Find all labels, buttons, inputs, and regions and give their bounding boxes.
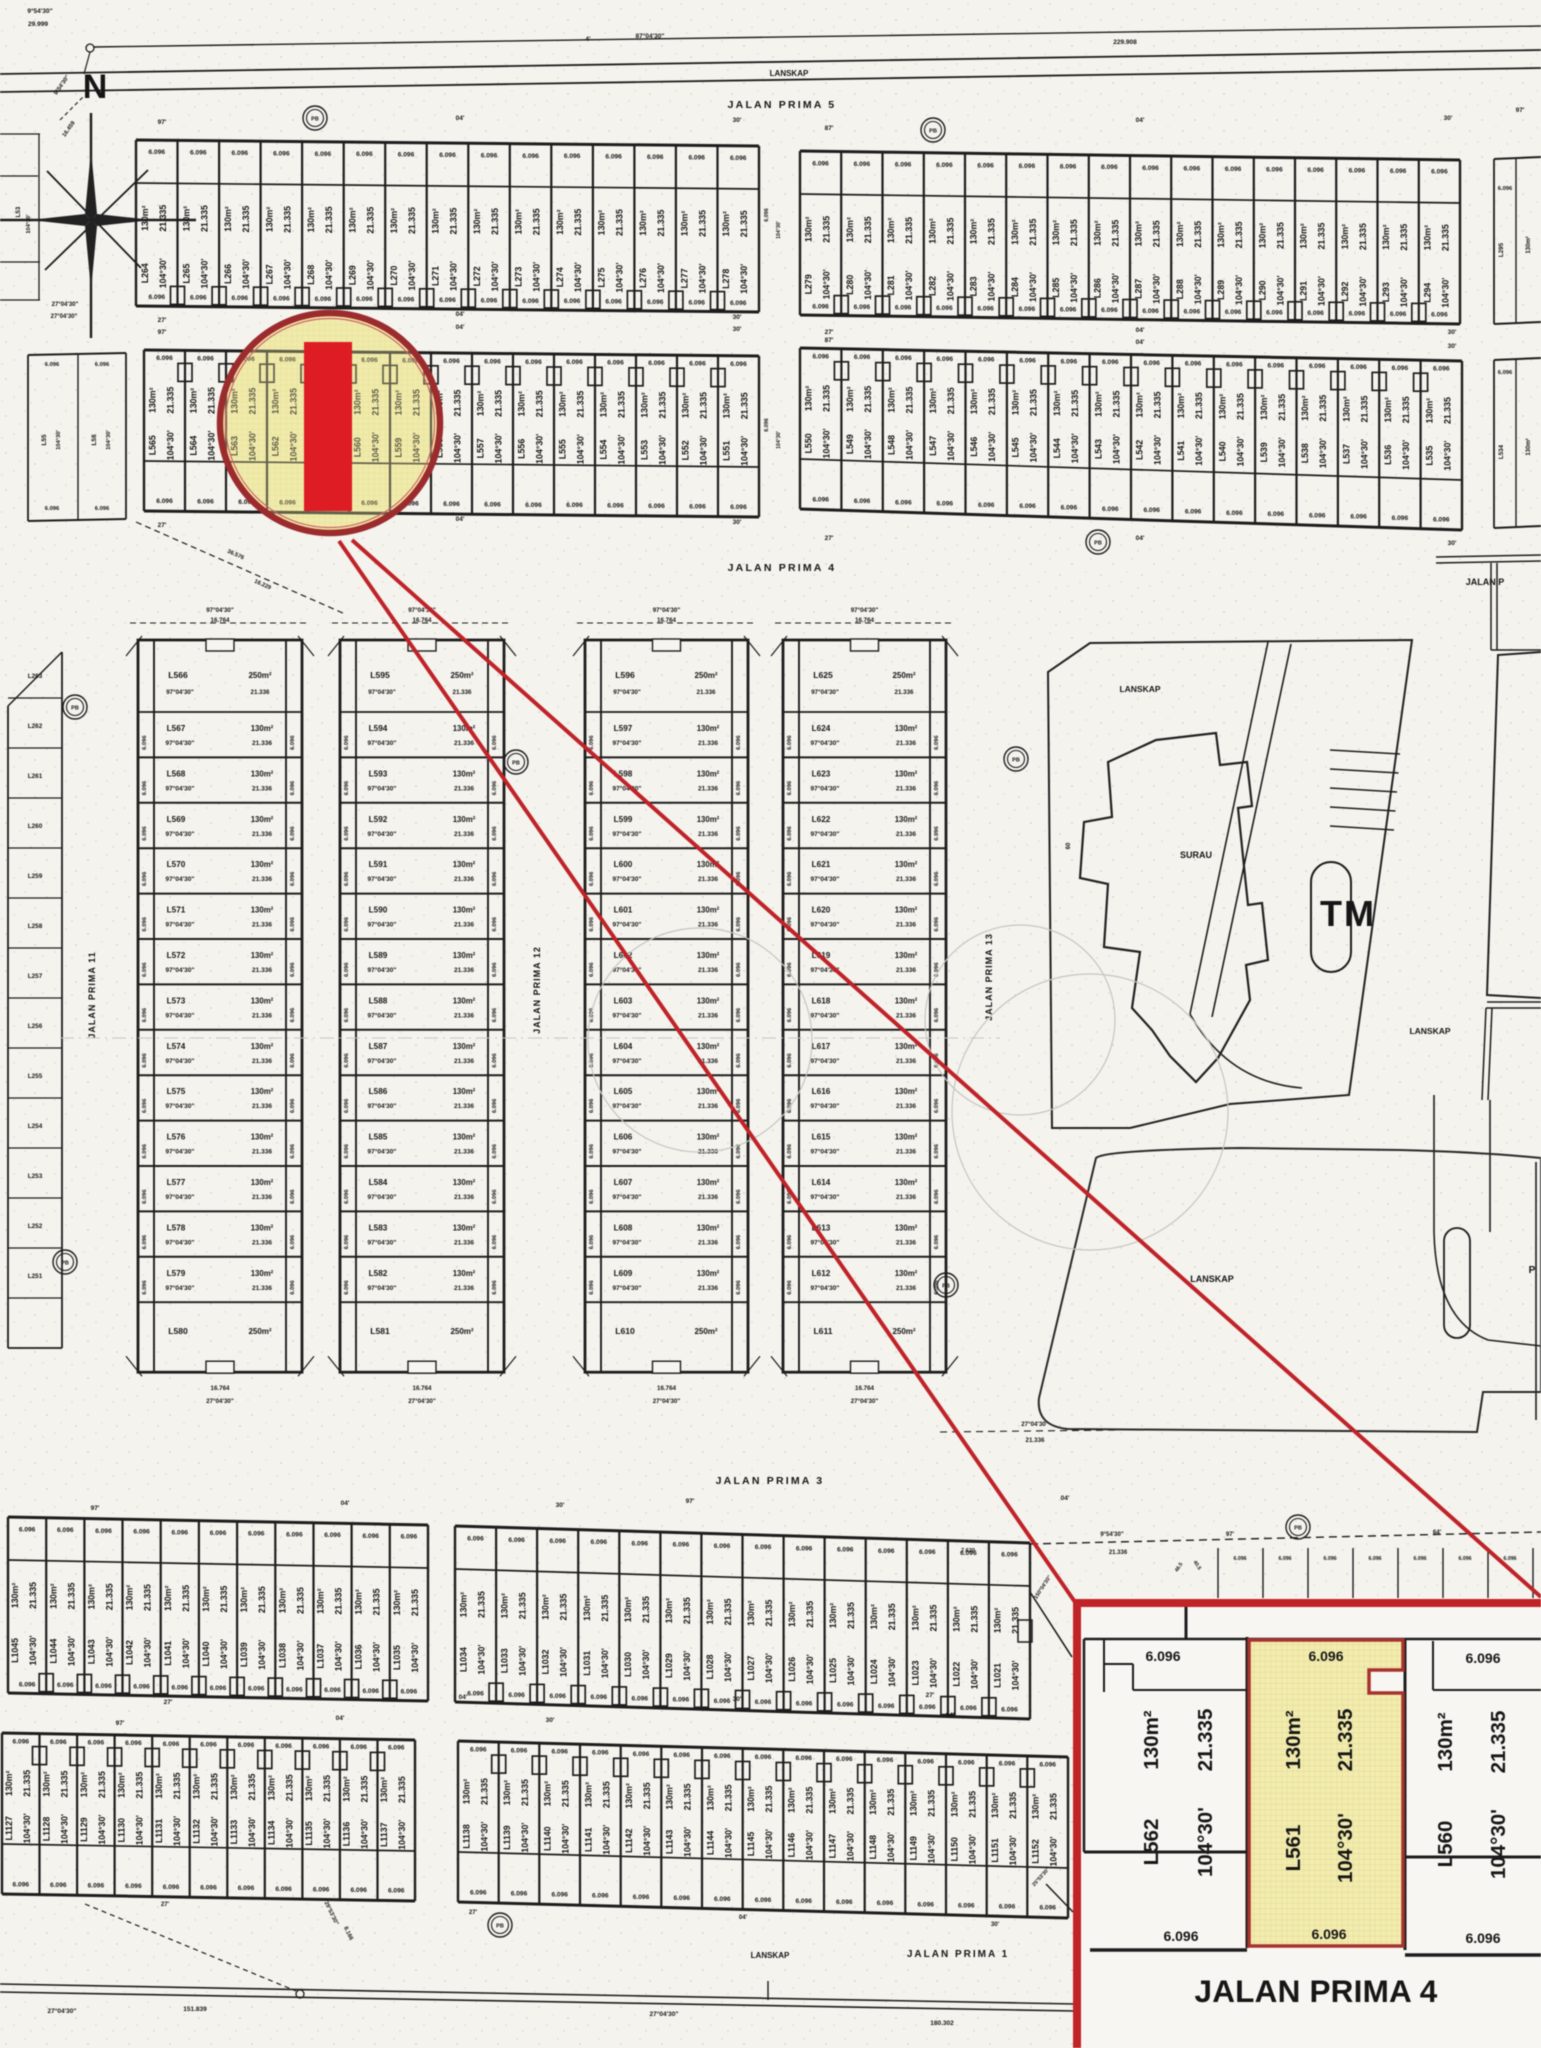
svg-text:130m²: 130m²	[4, 1771, 14, 1796]
svg-text:104°30': 104°30'	[683, 1827, 693, 1857]
svg-text:130m²: 130m²	[583, 1782, 593, 1807]
svg-text:04': 04'	[1136, 117, 1145, 124]
svg-text:6.096: 6.096	[1465, 1930, 1500, 1946]
svg-text:6.096: 6.096	[551, 1749, 568, 1756]
svg-text:21.335: 21.335	[1399, 224, 1409, 251]
svg-text:104°30': 104°30'	[1070, 433, 1080, 463]
svg-text:6.096: 6.096	[836, 1899, 853, 1906]
svg-text:P: P	[1529, 1265, 1536, 1276]
svg-text:L263: L263	[28, 673, 43, 680]
svg-text:6.096: 6.096	[978, 502, 995, 509]
svg-text:130m²: 130m²	[316, 1588, 326, 1613]
svg-text:104°30': 104°30'	[887, 1657, 897, 1687]
svg-text:L1038: L1038	[277, 1643, 287, 1668]
svg-text:104°30': 104°30'	[927, 1833, 937, 1863]
svg-text:130m²: 130m²	[705, 1785, 715, 1810]
svg-text:6.096: 6.096	[290, 780, 296, 795]
svg-text:L586: L586	[369, 1087, 388, 1096]
svg-text:21.336: 21.336	[698, 785, 718, 792]
svg-text:6.096: 6.096	[142, 780, 148, 795]
svg-text:21.335: 21.335	[987, 388, 997, 415]
svg-text:L1133: L1133	[229, 1820, 239, 1845]
svg-text:104°30': 104°30'	[928, 1658, 938, 1688]
svg-text:6.096: 6.096	[978, 357, 995, 364]
svg-text:6.096: 6.096	[142, 916, 148, 931]
svg-text:104°30': 104°30'	[642, 1826, 652, 1856]
svg-text:6.096: 6.096	[673, 1895, 690, 1902]
svg-text:21.336: 21.336	[252, 876, 272, 883]
svg-text:6.096: 6.096	[210, 1685, 227, 1692]
svg-text:SURAU: SURAU	[1180, 850, 1212, 860]
svg-text:21.335: 21.335	[967, 1791, 977, 1818]
svg-text:L1026: L1026	[787, 1657, 797, 1682]
svg-text:6.096: 6.096	[934, 780, 940, 795]
svg-text:6.096: 6.096	[190, 150, 207, 157]
svg-text:L581: L581	[370, 1326, 390, 1336]
svg-text:29.999: 29.999	[28, 21, 48, 28]
svg-text:21.335: 21.335	[904, 386, 914, 413]
svg-text:104°30': 104°30'	[166, 430, 176, 460]
svg-text:21.335: 21.335	[518, 1592, 528, 1619]
svg-text:6.096: 6.096	[88, 1883, 105, 1890]
svg-text:L587: L587	[369, 1042, 388, 1051]
svg-text:21.335: 21.335	[158, 205, 168, 232]
svg-text:21.335: 21.335	[656, 209, 666, 236]
svg-text:6.096: 6.096	[290, 871, 296, 886]
svg-text:21.335: 21.335	[658, 391, 668, 418]
svg-text:6.096: 6.096	[492, 1052, 498, 1067]
svg-text:130m²: 130m²	[251, 769, 274, 778]
svg-text:6.096: 6.096	[142, 871, 148, 886]
svg-text:6.096: 6.096	[1226, 510, 1243, 517]
svg-text:104°30': 104°30'	[334, 1641, 344, 1671]
svg-text:PB: PB	[311, 117, 319, 123]
svg-text:21.336: 21.336	[252, 1103, 272, 1110]
svg-text:104°30': 104°30'	[946, 431, 956, 461]
svg-text:130m²: 130m²	[1259, 395, 1269, 420]
svg-text:L1145: L1145	[746, 1832, 756, 1857]
svg-text:6.096: 6.096	[290, 825, 296, 840]
svg-text:104°30': 104°30'	[1008, 1835, 1018, 1865]
svg-text:L603: L603	[614, 996, 633, 1005]
svg-text:6.096: 6.096	[125, 1883, 142, 1890]
svg-text:104°30': 104°30'	[1049, 1836, 1059, 1866]
svg-text:130m²: 130m²	[459, 1592, 469, 1617]
svg-text:21.336: 21.336	[252, 1239, 272, 1246]
svg-text:21.336: 21.336	[698, 1194, 718, 1201]
svg-text:L578: L578	[167, 1223, 186, 1232]
svg-text:130m²: 130m²	[392, 1590, 402, 1615]
svg-text:6.096: 6.096	[673, 1752, 690, 1759]
svg-text:6.096: 6.096	[273, 150, 290, 157]
svg-text:21.336: 21.336	[896, 1194, 916, 1201]
svg-text:21.335: 21.335	[846, 1602, 856, 1629]
svg-text:6.096: 6.096	[787, 962, 793, 977]
svg-text:6.096: 6.096	[689, 360, 706, 367]
svg-text:L560: L560	[1434, 1821, 1457, 1868]
svg-text:L261: L261	[28, 773, 43, 780]
svg-text:97°04'30": 97°04'30"	[368, 921, 397, 929]
svg-text:130m²: 130m²	[895, 1269, 918, 1278]
svg-text:130m²: 130m²	[1175, 222, 1185, 247]
svg-text:6.096: 6.096	[812, 353, 829, 360]
svg-text:L259: L259	[28, 873, 43, 880]
svg-text:6.096: 6.096	[1350, 364, 1367, 371]
svg-text:130m²: 130m²	[1011, 390, 1021, 415]
svg-text:21.336: 21.336	[251, 689, 270, 696]
svg-text:6.096: 6.096	[401, 1689, 418, 1696]
svg-text:130m²: 130m²	[624, 1783, 634, 1808]
svg-text:L1034: L1034	[459, 1647, 469, 1672]
svg-text:250m²: 250m²	[694, 671, 717, 680]
svg-text:6.096: 6.096	[589, 1234, 595, 1249]
svg-text:104°30': 104°30'	[477, 1645, 487, 1675]
svg-text:L278: L278	[721, 269, 731, 289]
svg-text:6.096: 6.096	[344, 1279, 350, 1294]
svg-text:6.096: 6.096	[714, 1896, 731, 1903]
svg-text:21.336: 21.336	[896, 1149, 916, 1156]
svg-text:L1027: L1027	[746, 1656, 756, 1681]
svg-text:130m²: 130m²	[582, 1595, 592, 1620]
svg-text:250m²: 250m²	[892, 671, 915, 680]
svg-text:104°30': 104°30'	[518, 1646, 528, 1676]
svg-text:L1130: L1130	[116, 1818, 126, 1843]
svg-text:6.096: 6.096	[1390, 311, 1407, 318]
svg-text:21.336: 21.336	[896, 1285, 916, 1292]
svg-text:27': 27'	[158, 522, 167, 529]
svg-text:L538: L538	[1300, 443, 1310, 463]
svg-text:6.096: 6.096	[1142, 165, 1159, 172]
svg-text:30': 30'	[733, 1696, 742, 1703]
svg-text:104°30': 104°30'	[576, 434, 586, 464]
svg-text:21.336: 21.336	[698, 967, 718, 974]
svg-text:130m²: 130m²	[251, 1087, 274, 1096]
svg-text:97°04'30": 97°04'30"	[368, 1011, 397, 1019]
svg-text:6.096: 6.096	[787, 1234, 793, 1249]
svg-text:L251: L251	[28, 1273, 43, 1280]
svg-text:L617: L617	[812, 1042, 831, 1051]
svg-text:6.096: 6.096	[1504, 1556, 1517, 1562]
svg-text:6.096: 6.096	[156, 498, 173, 505]
svg-text:6.096: 6.096	[467, 1691, 484, 1698]
svg-text:97°04'30": 97°04'30"	[653, 607, 681, 614]
svg-text:21.336: 21.336	[698, 831, 718, 838]
svg-text:6.096: 6.096	[350, 1887, 367, 1894]
svg-text:130m²: 130m²	[1134, 221, 1144, 246]
svg-text:130m²: 130m²	[1282, 1710, 1305, 1769]
svg-text:9°54'30": 9°54'30"	[27, 7, 52, 15]
svg-text:L282: L282	[927, 276, 937, 296]
svg-text:21.335: 21.335	[561, 1780, 571, 1807]
svg-text:6.096: 6.096	[149, 294, 166, 301]
svg-text:104°30': 104°30'	[863, 429, 873, 459]
svg-text:PB: PB	[496, 1924, 504, 1930]
svg-text:130m²: 130m²	[304, 1776, 314, 1801]
svg-text:L594: L594	[369, 724, 388, 733]
svg-text:6.096: 6.096	[163, 1741, 180, 1748]
svg-text:L1143: L1143	[665, 1830, 675, 1855]
svg-text:130m²: 130m²	[895, 769, 918, 778]
svg-text:30': 30'	[733, 326, 742, 333]
svg-text:L268: L268	[306, 265, 316, 285]
svg-text:21.335: 21.335	[143, 1584, 153, 1611]
svg-text:6.096: 6.096	[200, 1742, 217, 1749]
svg-text:6.096: 6.096	[238, 1742, 255, 1749]
svg-text:6.096: 6.096	[934, 1143, 940, 1158]
svg-text:6.096: 6.096	[937, 356, 954, 363]
svg-text:6.096: 6.096	[607, 503, 624, 510]
svg-text:21.335: 21.335	[207, 387, 217, 414]
svg-text:6.096: 6.096	[439, 297, 456, 304]
svg-text:97°04'30": 97°04'30"	[811, 784, 840, 792]
svg-text:97°04'30": 97°04'30"	[613, 739, 642, 747]
svg-text:L570: L570	[167, 860, 186, 869]
svg-text:97°04'30": 97°04'30"	[368, 1057, 397, 1065]
svg-text:04': 04'	[336, 1715, 345, 1722]
svg-text:6.096: 6.096	[787, 1279, 793, 1294]
svg-text:104°30': 104°30'	[1442, 441, 1452, 471]
svg-text:L1139: L1139	[502, 1825, 512, 1850]
svg-text:130m²: 130m²	[697, 996, 720, 1005]
svg-text:6.096: 6.096	[238, 1885, 255, 1892]
svg-text:6.096: 6.096	[1369, 1556, 1382, 1562]
svg-text:130m²: 130m²	[10, 1583, 20, 1608]
svg-text:6.096: 6.096	[787, 780, 793, 795]
svg-text:130m²: 130m²	[453, 1133, 476, 1142]
svg-text:L269: L269	[347, 265, 357, 285]
svg-text:L272: L272	[472, 266, 482, 286]
svg-text:16.764: 16.764	[413, 1385, 432, 1392]
svg-text:130m²: 130m²	[969, 219, 979, 244]
svg-text:6.096: 6.096	[936, 305, 953, 312]
svg-text:21.335: 21.335	[1110, 220, 1120, 247]
svg-text:6.096: 6.096	[589, 916, 595, 931]
svg-text:L592: L592	[369, 815, 388, 824]
svg-text:L1042: L1042	[125, 1640, 135, 1665]
svg-text:TM: TM	[1320, 893, 1376, 934]
svg-text:104°30': 104°30'	[407, 261, 417, 291]
svg-text:6.096: 6.096	[787, 735, 793, 750]
svg-text:21.335: 21.335	[360, 1775, 370, 1802]
svg-text:130m²: 130m²	[264, 207, 274, 232]
svg-text:6.096: 6.096	[730, 504, 747, 511]
svg-text:21.335: 21.335	[1401, 396, 1411, 423]
svg-text:6.096: 6.096	[854, 161, 871, 168]
svg-text:21.336: 21.336	[252, 831, 272, 838]
svg-text:6.096: 6.096	[934, 735, 940, 750]
svg-text:104°30': 104°30'	[1153, 435, 1163, 465]
svg-text:130m²: 130m²	[277, 1588, 287, 1613]
svg-text:6.096: 6.096	[591, 1694, 608, 1701]
svg-text:6.096: 6.096	[344, 962, 350, 977]
svg-text:6.096: 6.096	[837, 1702, 854, 1709]
svg-text:21.336: 21.336	[896, 967, 916, 974]
svg-text:130m²: 130m²	[514, 209, 524, 234]
svg-text:21.335: 21.335	[181, 1585, 191, 1612]
svg-text:PB: PB	[929, 129, 937, 135]
svg-text:97°04'30": 97°04'30"	[613, 1284, 642, 1292]
svg-text:6.096: 6.096	[589, 1143, 595, 1158]
svg-text:JALAN PRIMA 4: JALAN PRIMA 4	[1195, 1973, 1438, 2009]
svg-text:130m²: 130m²	[154, 1773, 164, 1798]
svg-text:21.336: 21.336	[896, 1058, 916, 1065]
svg-text:21.335: 21.335	[927, 1790, 937, 1817]
svg-text:LANSKAP: LANSKAP	[751, 1951, 790, 1960]
svg-text:130m²: 130m²	[453, 906, 476, 915]
svg-text:130m²: 130m²	[746, 1786, 756, 1811]
svg-text:6.096: 6.096	[934, 1007, 940, 1022]
svg-text:6.096: 6.096	[95, 506, 110, 512]
svg-text:104°30': 104°30'	[845, 1831, 855, 1861]
svg-text:6.096: 6.096	[142, 1143, 148, 1158]
svg-text:21.336: 21.336	[252, 785, 272, 792]
svg-text:6.096: 6.096	[795, 1755, 812, 1762]
svg-text:130m²: 130m²	[251, 906, 274, 915]
svg-text:130m²: 130m²	[990, 1793, 1000, 1818]
svg-text:21.335: 21.335	[805, 1787, 815, 1814]
svg-text:L292: L292	[1340, 281, 1350, 301]
svg-text:6.096: 6.096	[439, 152, 456, 159]
svg-text:6.096: 6.096	[960, 1705, 977, 1712]
svg-text:130m²: 130m²	[453, 769, 476, 778]
svg-text:04': 04'	[456, 516, 465, 523]
svg-text:21.335: 21.335	[1235, 393, 1245, 420]
svg-text:104°30': 104°30'	[410, 1643, 420, 1673]
svg-text:104°30': 104°30'	[846, 1655, 856, 1685]
svg-text:130m²: 130m²	[476, 391, 486, 416]
svg-text:16.764: 16.764	[855, 1385, 874, 1392]
svg-text:21.335: 21.335	[739, 210, 749, 237]
svg-text:21.335: 21.335	[928, 1604, 938, 1631]
svg-text:104°30': 104°30'	[449, 261, 459, 291]
svg-text:21.335: 21.335	[969, 1606, 979, 1633]
svg-text:130m²: 130m²	[453, 1223, 476, 1232]
svg-text:L589: L589	[369, 951, 388, 960]
svg-text:97°04'30": 97°04'30"	[368, 1238, 397, 1246]
svg-text:16.764: 16.764	[657, 617, 676, 624]
svg-text:21.335: 21.335	[453, 389, 463, 416]
svg-text:6.096: 6.096	[917, 1758, 934, 1765]
svg-text:130m²: 130m²	[895, 1087, 918, 1096]
svg-text:6.096: 6.096	[1001, 1706, 1018, 1713]
svg-text:130m²: 130m²	[640, 392, 650, 417]
svg-text:97': 97'	[116, 1720, 125, 1727]
svg-text:97°04'30": 97°04'30"	[811, 1102, 840, 1110]
svg-text:6.096: 6.096	[290, 1007, 296, 1022]
svg-text:104°30': 104°30'	[886, 1832, 896, 1862]
svg-text:21.336: 21.336	[896, 922, 916, 929]
svg-text:04': 04'	[1136, 339, 1145, 346]
svg-text:130m²: 130m²	[787, 1787, 797, 1812]
svg-text:6.096: 6.096	[1390, 168, 1407, 175]
svg-text:130m²: 130m²	[1051, 220, 1061, 245]
svg-text:L291: L291	[1299, 281, 1309, 301]
svg-text:130m²: 130m²	[1434, 1712, 1457, 1771]
svg-text:6.096: 6.096	[95, 1528, 112, 1535]
svg-text:97°04'30": 97°04'30"	[166, 739, 195, 747]
svg-text:130m²: 130m²	[1300, 395, 1310, 420]
svg-text:L53: L53	[15, 206, 22, 217]
svg-text:6.096: 6.096	[290, 962, 296, 977]
svg-text:97°04'30": 97°04'30"	[166, 1238, 195, 1246]
svg-text:130m²: 130m²	[910, 1605, 920, 1630]
svg-text:L275: L275	[597, 267, 607, 287]
svg-text:6.096: 6.096	[647, 154, 664, 161]
svg-text:130m²: 130m²	[453, 1042, 476, 1051]
svg-text:104°30': 104°30'	[257, 1640, 267, 1670]
svg-text:21.335: 21.335	[334, 1588, 344, 1615]
svg-text:L583: L583	[369, 1223, 388, 1232]
svg-text:6.096: 6.096	[566, 502, 583, 509]
svg-text:21.335: 21.335	[1029, 389, 1039, 416]
svg-text:130m²: 130m²	[453, 1178, 476, 1187]
svg-text:21.335: 21.335	[822, 385, 832, 412]
svg-text:21.336: 21.336	[252, 740, 272, 747]
svg-text:6.096: 6.096	[764, 418, 770, 432]
svg-text:JALAN PRIMA 3: JALAN PRIMA 3	[716, 1475, 825, 1487]
svg-text:97°04'30": 97°04'30"	[613, 1148, 642, 1156]
svg-text:6.096: 6.096	[492, 1279, 498, 1294]
svg-text:21.335: 21.335	[105, 1583, 115, 1610]
svg-text:6.096: 6.096	[1309, 512, 1326, 519]
svg-text:L545: L545	[1011, 437, 1021, 457]
svg-text:130m²: 130m²	[461, 1779, 471, 1804]
svg-text:L1031: L1031	[582, 1651, 592, 1676]
svg-text:130m²: 130m²	[895, 996, 918, 1005]
svg-text:6.096: 6.096	[1392, 515, 1409, 522]
svg-text:104°30': 104°30'	[282, 259, 292, 289]
svg-text:21.335: 21.335	[1334, 1709, 1357, 1772]
svg-text:6.096: 6.096	[787, 1007, 793, 1022]
svg-text:104°30': 104°30'	[207, 431, 217, 461]
svg-text:04': 04'	[1136, 535, 1145, 542]
svg-text:6.096: 6.096	[878, 1703, 895, 1710]
svg-text:21.336: 21.336	[1026, 1437, 1045, 1444]
svg-text:21.336: 21.336	[454, 967, 474, 974]
svg-text:27°04'30": 27°04'30"	[650, 2010, 679, 2018]
svg-text:L601: L601	[614, 906, 633, 915]
svg-text:6.096: 6.096	[1019, 163, 1036, 170]
svg-text:L536: L536	[1383, 445, 1393, 465]
svg-text:130m²: 130m²	[828, 1603, 838, 1628]
svg-text:L1146: L1146	[787, 1833, 797, 1858]
svg-text:N: N	[83, 68, 108, 106]
svg-text:L1044: L1044	[48, 1639, 58, 1664]
svg-text:JALAN PRIMA 13: JALAN PRIMA 13	[984, 933, 994, 1021]
svg-text:16.764: 16.764	[211, 1385, 230, 1392]
svg-text:130m²: 130m²	[623, 1597, 633, 1622]
svg-text:6.096: 6.096	[755, 1897, 772, 1904]
svg-text:6.096: 6.096	[1039, 1905, 1056, 1912]
svg-text:6.096: 6.096	[1350, 514, 1367, 521]
svg-text:104°30': 104°30'	[723, 1828, 733, 1858]
svg-text:6.096: 6.096	[764, 208, 770, 222]
svg-text:6.096: 6.096	[589, 825, 595, 840]
svg-text:130m²: 130m²	[354, 1589, 364, 1614]
svg-text:6.096: 6.096	[1308, 1648, 1343, 1664]
svg-text:104°30': 104°30'	[1277, 437, 1287, 467]
svg-text:130m²: 130m²	[804, 217, 814, 242]
svg-text:97°04'30": 97°04'30"	[613, 1102, 642, 1110]
svg-text:16.764: 16.764	[211, 617, 230, 624]
svg-text:130m²: 130m²	[543, 1781, 553, 1806]
svg-text:250m²: 250m²	[892, 1327, 915, 1336]
svg-text:21.335: 21.335	[987, 218, 997, 245]
svg-text:L621: L621	[812, 860, 831, 869]
svg-text:6.096: 6.096	[344, 916, 350, 931]
svg-text:6.096: 6.096	[1184, 308, 1201, 315]
svg-text:21.335: 21.335	[66, 1583, 76, 1610]
